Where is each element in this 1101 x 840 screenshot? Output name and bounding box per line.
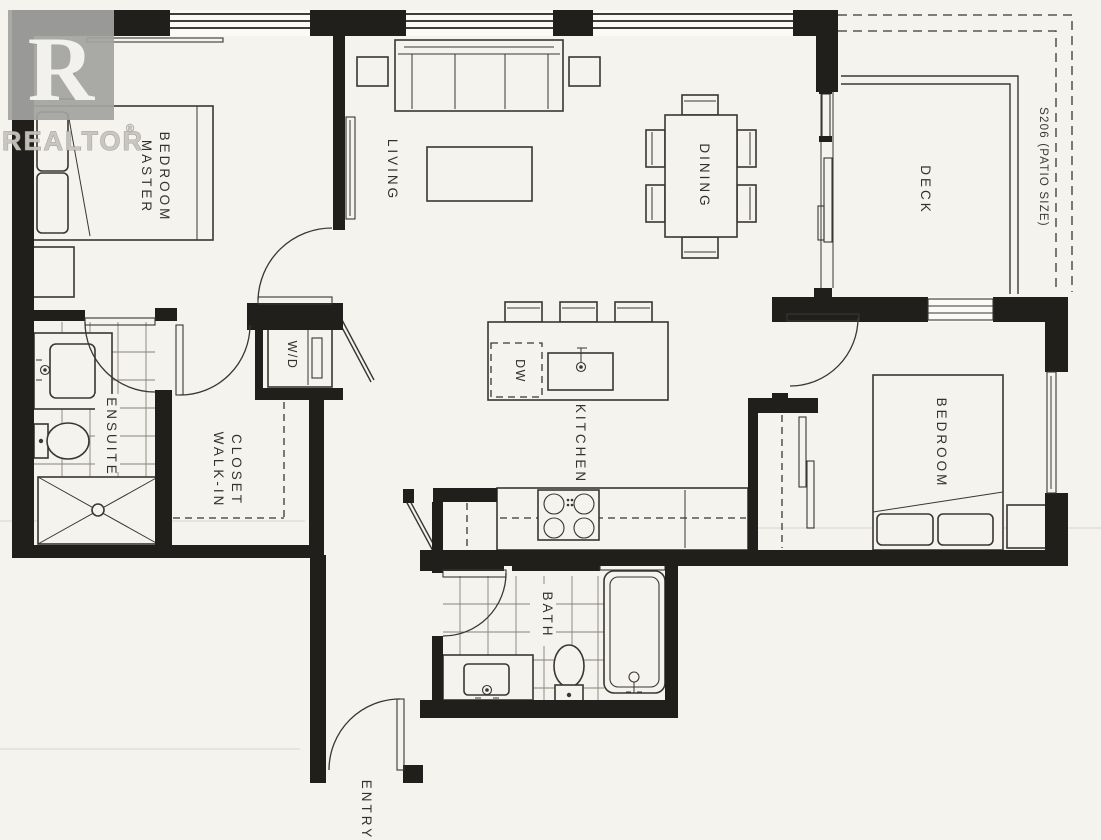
deck-area: DECK S206 (PATIO SIZE) — [838, 15, 1072, 294]
realtor-brand-text: REALTOR — [2, 126, 144, 156]
master-bedroom-label-line2: BEDROOM — [157, 132, 172, 223]
walk-in-closet-door — [176, 325, 250, 395]
side-table-left — [357, 57, 388, 86]
deck-sliding-door — [818, 88, 833, 288]
floor-plan-page: ENSUITE BATH — [0, 0, 1101, 840]
patio-size-note: S206 (PATIO SIZE) — [1037, 107, 1049, 227]
bath-door — [443, 570, 506, 636]
living-label: LIVING — [385, 139, 400, 201]
stove — [538, 490, 599, 540]
bath-toilet — [554, 645, 584, 705]
ensuite-label: ENSUITE — [104, 397, 119, 477]
kitchen-sink — [548, 348, 613, 390]
realtor-logo-letter: R — [28, 18, 96, 120]
walk-in-closet-label-line1: WALK-IN — [211, 432, 226, 509]
walk-in-closet-room: WALK-IN CLOSET — [173, 402, 284, 518]
entry-door — [329, 699, 404, 770]
bar-stool-3 — [615, 302, 652, 322]
bedroom-room: BEDROOM — [782, 375, 1053, 550]
tv-console — [346, 117, 355, 219]
side-table-right — [569, 57, 600, 86]
bath-vanity — [443, 655, 533, 700]
dining-label: DINING — [697, 143, 712, 208]
master-nightstand-bottom — [30, 247, 74, 297]
bath-label: BATH — [540, 591, 555, 638]
deck-label: DECK — [918, 165, 933, 215]
floor-plan-drawing: ENSUITE BATH — [0, 0, 1101, 840]
bar-stool-2 — [560, 302, 597, 322]
kitchen-label: KITCHEN — [573, 404, 588, 484]
laundry-label: W/D — [285, 341, 299, 370]
master-bedroom-door — [258, 228, 332, 304]
bar-stool-1 — [505, 302, 542, 322]
bedroom-door — [787, 314, 859, 386]
living-room: LIVING — [346, 40, 600, 219]
patio-outline-dashed-outer — [838, 15, 1072, 292]
walk-in-closet-label-line2: CLOSET — [229, 434, 244, 506]
bath-room: BATH — [443, 571, 665, 705]
sofa — [395, 40, 563, 111]
ensuite-shower — [38, 477, 158, 544]
bedroom-side-window — [1047, 372, 1056, 493]
kitchen-island: DW — [488, 302, 668, 400]
kitchen-counter — [497, 488, 748, 550]
coffee-table — [427, 147, 532, 201]
bedroom-label: BEDROOM — [934, 398, 949, 489]
dishwasher-label: DW — [513, 359, 527, 383]
dining-room: DINING — [646, 95, 756, 258]
kitchen-area: DW KITCHEN — [488, 302, 748, 550]
patio-outline-dashed-inner — [838, 31, 1056, 292]
ensuite-toilet — [34, 423, 89, 459]
closet-rod-dashed — [173, 402, 284, 518]
entry-label: ENTRY — [359, 780, 374, 840]
entry-closet-door — [406, 499, 436, 551]
bedroom-deck-window — [928, 297, 993, 322]
realtor-registered-mark: ® — [126, 123, 134, 135]
laundry-door — [338, 318, 374, 382]
ensuite-room: ENSUITE — [34, 322, 158, 544]
bathtub — [604, 571, 665, 693]
